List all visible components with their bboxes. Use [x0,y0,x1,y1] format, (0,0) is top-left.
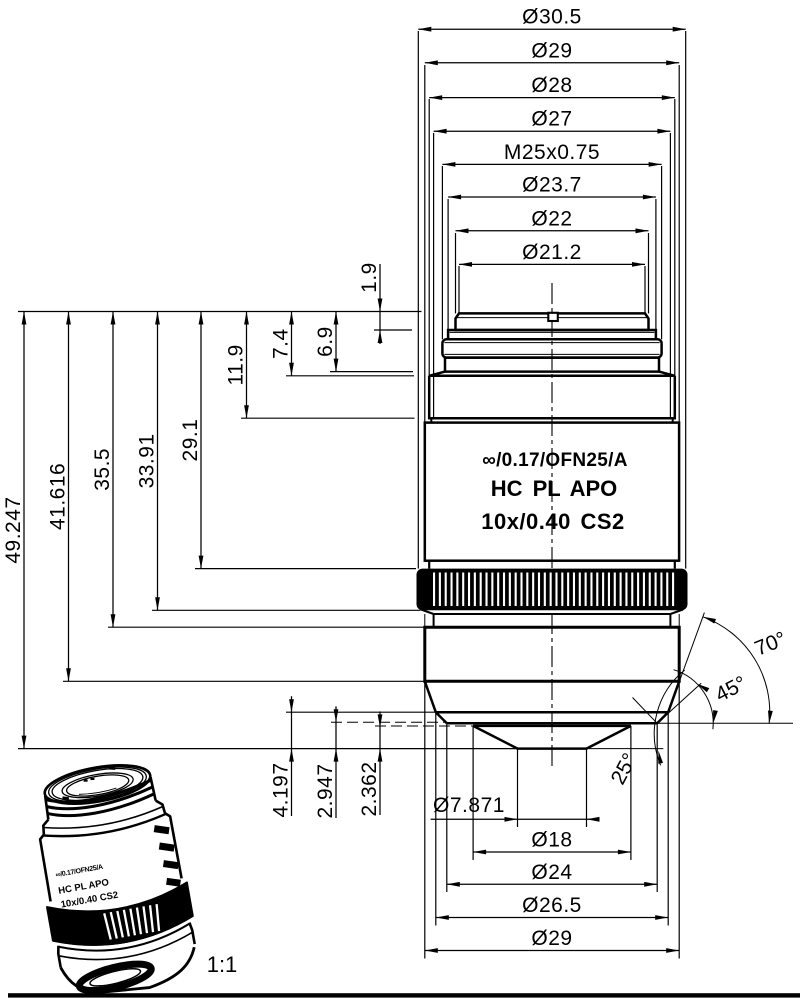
svg-text:Ø18: Ø18 [531,829,572,852]
svg-text:33.91: 33.91 [136,433,159,488]
svg-text:Ø29: Ø29 [531,927,572,950]
svg-text:Ø30.5: Ø30.5 [522,6,582,29]
svg-text:29.1: 29.1 [179,419,202,462]
svg-text:11.9: 11.9 [225,344,248,385]
svg-text:Ø24: Ø24 [531,861,572,884]
svg-text:HC PL APO: HC PL APO [491,476,618,501]
svg-text:∞/0.17/OFN25/A: ∞/0.17/OFN25/A [482,450,628,471]
svg-text:4.197: 4.197 [270,762,293,817]
svg-text:2.947: 2.947 [314,763,337,818]
svg-text:Ø22: Ø22 [531,207,572,230]
svg-text:35.5: 35.5 [91,448,114,491]
svg-text:10x/0.40 CS2: 10x/0.40 CS2 [481,509,625,534]
svg-text:Ø28: Ø28 [531,74,572,97]
svg-text:49.247: 49.247 [2,496,25,563]
svg-text:Ø21.2: Ø21.2 [522,241,582,264]
svg-text:Ø27: Ø27 [531,108,572,131]
svg-text:Ø23.7: Ø23.7 [522,174,582,197]
svg-text:Ø26.5: Ø26.5 [522,894,582,917]
svg-text:2.362: 2.362 [358,761,381,816]
svg-text:7.4: 7.4 [269,328,292,359]
svg-text:M25x0.75: M25x0.75 [504,141,600,164]
svg-text:41.616: 41.616 [47,463,70,530]
svg-text:6.9: 6.9 [314,326,337,357]
svg-text:1:1: 1:1 [207,952,238,977]
svg-text:Ø29: Ø29 [531,39,572,62]
svg-text:Ø7.871: Ø7.871 [433,794,505,817]
svg-text:1.9: 1.9 [358,262,381,293]
